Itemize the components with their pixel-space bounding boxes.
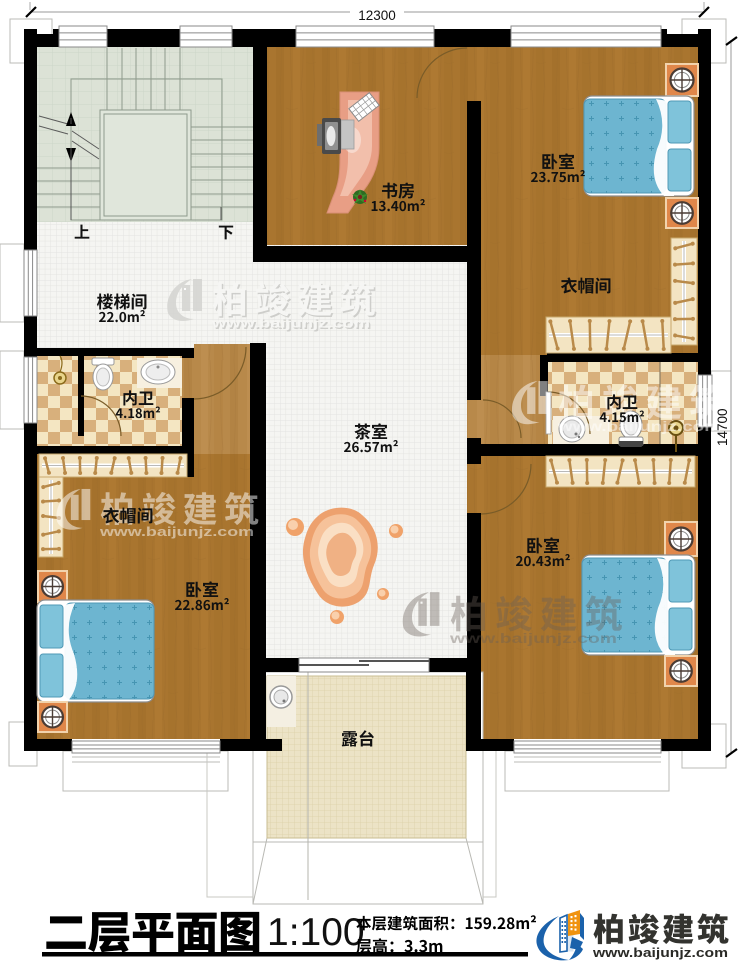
svg-text:1:100: 1:100 — [267, 911, 365, 954]
svg-text:www.baijunjz.com: www.baijunjz.com — [99, 524, 254, 539]
svg-text:www.baijunjz.com: www.baijunjz.com — [449, 630, 617, 646]
svg-text:www.baijunjz.com: www.baijunjz.com — [557, 419, 721, 434]
svg-text:www.baijunjz.com: www.baijunjz.com — [211, 315, 371, 330]
svg-text:www.baijunjz.com: www.baijunjz.com — [592, 946, 728, 960]
svg-text:14700: 14700 — [715, 408, 730, 446]
svg-text:12300: 12300 — [358, 8, 396, 23]
